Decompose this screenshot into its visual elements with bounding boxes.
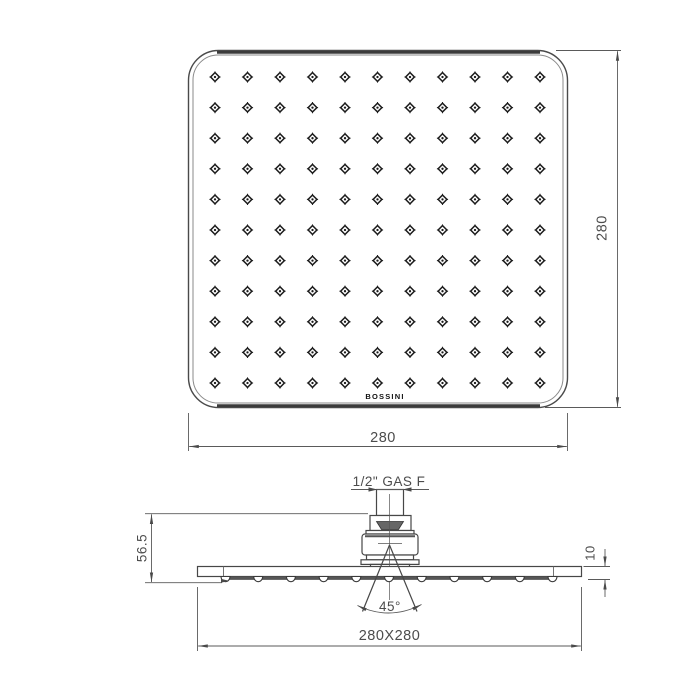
side-nozzle (286, 577, 295, 582)
dim-footprint-label: 280X280 (359, 628, 421, 644)
dim-head-height-label: 56.5 (135, 534, 150, 562)
side-nozzle (352, 577, 361, 582)
dimension-edge-thickness: 10 (583, 545, 611, 597)
logo-text: BOSSINI (365, 392, 404, 401)
swivel-gasket (377, 522, 404, 530)
mount-flange (361, 560, 419, 565)
dim-top-width-label: 280 (370, 430, 396, 446)
inlet-pipe (377, 490, 404, 516)
plate-outline (198, 567, 582, 577)
connector (361, 490, 419, 601)
dimension-top-width: 280 (189, 413, 568, 451)
drawing-canvas: BOSSINI 280 280 (0, 0, 700, 700)
spray-angle-label: 45° (379, 599, 401, 614)
side-nozzle (548, 577, 557, 582)
side-nozzle (483, 577, 492, 582)
dimension-connection: 1/2" GAS F (351, 474, 429, 492)
side-nozzle (515, 577, 524, 582)
dim-edge-thickness-label: 10 (583, 545, 598, 560)
top-view: BOSSINI (189, 51, 568, 408)
side-nozzle (319, 577, 328, 582)
connector-ring (367, 555, 414, 560)
dim-top-height-label: 280 (595, 215, 611, 241)
side-nozzle (254, 577, 263, 582)
head-profile (198, 567, 582, 582)
connection-size-label: 1/2" GAS F (353, 474, 426, 489)
side-nozzle (450, 577, 459, 582)
side-view: 45° 1/2" GAS F 56.5 10 (135, 474, 611, 651)
side-nozzle (384, 577, 393, 582)
technical-drawing: BOSSINI 280 280 (0, 0, 700, 700)
side-nozzle (417, 577, 426, 582)
